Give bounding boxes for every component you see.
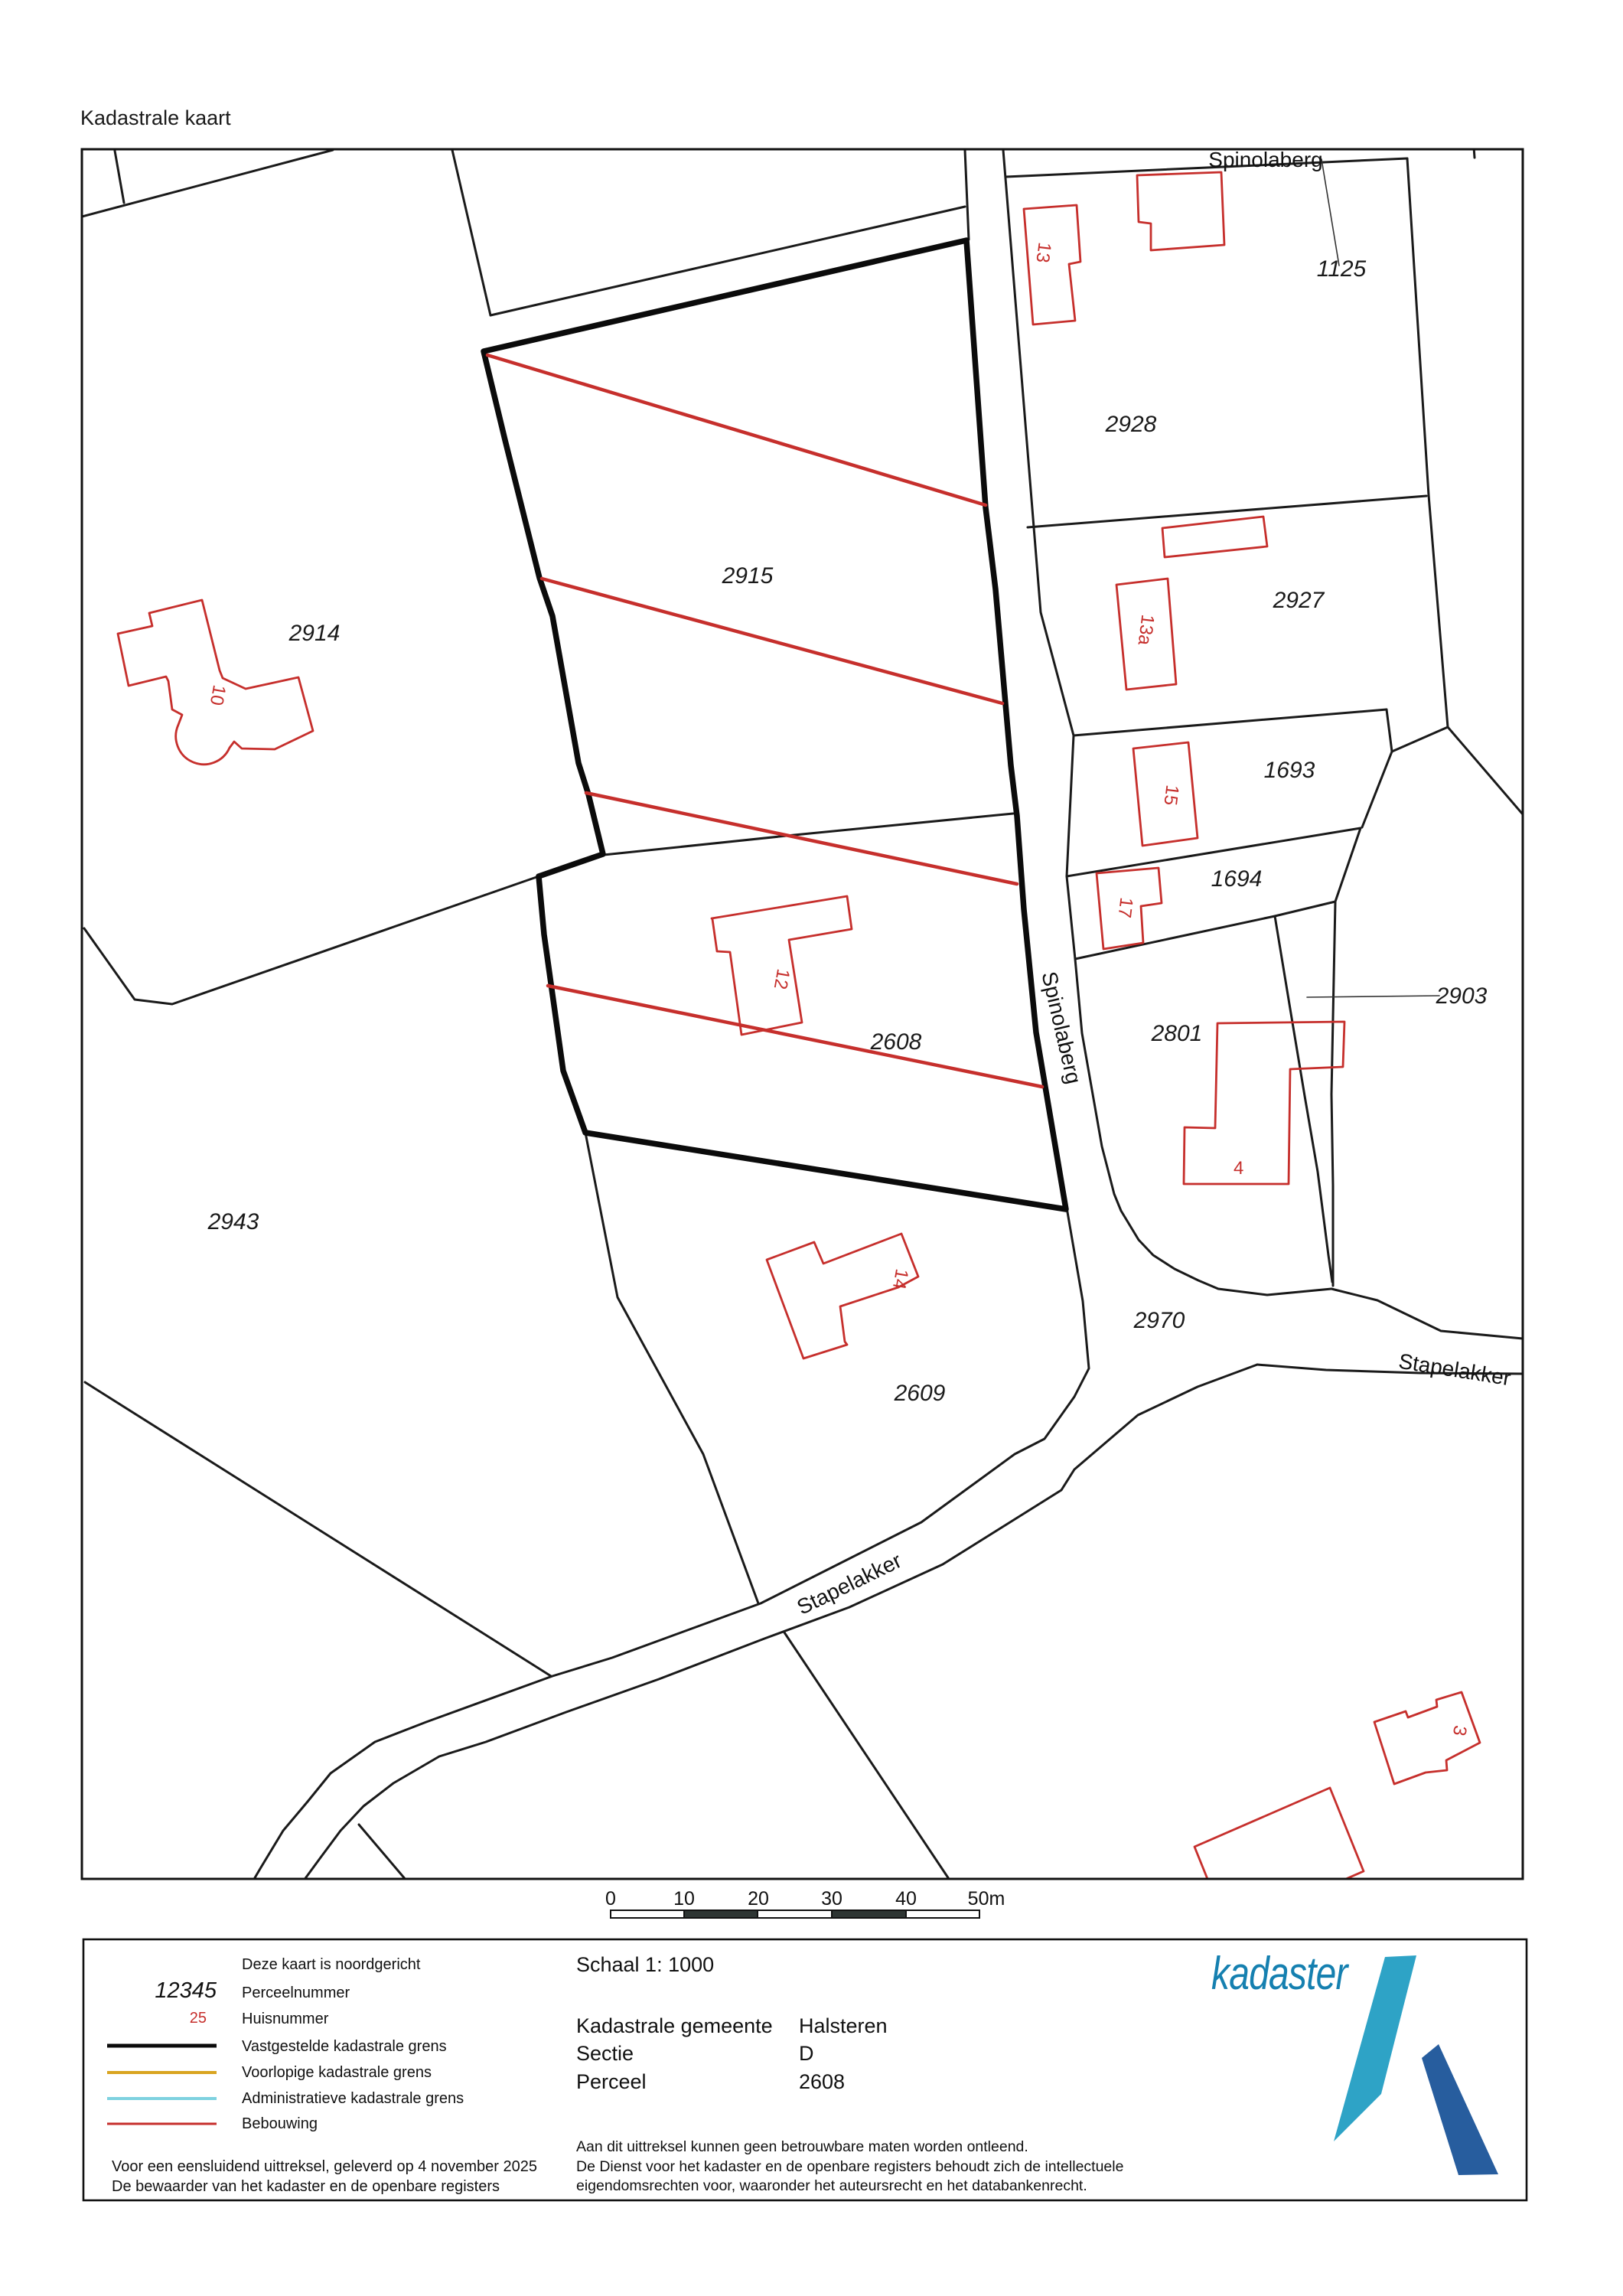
svg-text:2914: 2914	[288, 621, 341, 646]
svg-text:Administratieve kadastrale gre: Administratieve kadastrale grens	[242, 2090, 464, 2107]
svg-text:Schaal 1: 1000: Schaal 1: 1000	[576, 1953, 714, 1976]
svg-text:10: 10	[673, 1888, 695, 1910]
svg-text:1125: 1125	[1317, 256, 1367, 282]
svg-text:25: 25	[190, 2010, 207, 2027]
svg-text:Deze kaart is noordgericht: Deze kaart is noordgericht	[242, 1956, 421, 1973]
svg-text:0: 0	[605, 1888, 616, 1910]
svg-text:Perceelnummer: Perceelnummer	[242, 1985, 350, 2001]
svg-text:14: 14	[888, 1267, 912, 1291]
svg-text:17: 17	[1113, 896, 1136, 919]
svg-text:2608: 2608	[799, 2070, 845, 2093]
svg-text:15: 15	[1159, 784, 1182, 807]
svg-text:Voorlopige kadastrale grens: Voorlopige kadastrale grens	[242, 2064, 432, 2081]
svg-text:2915: 2915	[722, 563, 774, 589]
svg-text:Kadastrale kaart: Kadastrale kaart	[80, 106, 231, 129]
svg-text:Perceel: Perceel	[576, 2070, 647, 2093]
svg-text:2970: 2970	[1133, 1308, 1185, 1333]
svg-text:1693: 1693	[1264, 758, 1315, 783]
svg-text:kadaster: kadaster	[1211, 1948, 1349, 1999]
svg-text:40: 40	[895, 1888, 917, 1910]
svg-text:Aan dit uittreksel kunnen geen: Aan dit uittreksel kunnen geen betrouwba…	[576, 2138, 1028, 2155]
svg-text:Bebouwing: Bebouwing	[242, 2115, 318, 2132]
svg-text:2928: 2928	[1105, 412, 1157, 437]
svg-text:1694: 1694	[1211, 866, 1263, 892]
svg-text:Voor een eensluidend uittrekse: Voor een eensluidend uittreksel, gelever…	[112, 2158, 537, 2175]
svg-text:4: 4	[1234, 1158, 1243, 1179]
svg-text:30: 30	[821, 1888, 842, 1910]
svg-text:12: 12	[770, 967, 794, 991]
svg-text:2801: 2801	[1151, 1021, 1203, 1046]
svg-text:De Dienst voor het kadaster en: De Dienst voor het kadaster en de openba…	[576, 2158, 1123, 2175]
svg-text:2608: 2608	[870, 1029, 922, 1055]
svg-text:13a: 13a	[1134, 613, 1159, 647]
svg-text:Vastgestelde kadastrale grens: Vastgestelde kadastrale grens	[242, 2038, 447, 2055]
svg-text:2609: 2609	[894, 1381, 946, 1406]
svg-text:De bewaarder van het kadaster: De bewaarder van het kadaster en de open…	[112, 2178, 500, 2195]
svg-text:D: D	[799, 2042, 814, 2065]
svg-text:10: 10	[206, 683, 230, 707]
svg-text:20: 20	[748, 1888, 769, 1910]
svg-text:50m: 50m	[968, 1888, 1005, 1910]
svg-text:Halsteren: Halsteren	[799, 2014, 888, 2037]
svg-text:13: 13	[1031, 241, 1054, 264]
svg-text:Huisnummer: Huisnummer	[242, 2011, 329, 2027]
svg-text:2903: 2903	[1436, 983, 1488, 1009]
svg-text:Spinolaberg: Spinolaberg	[1208, 148, 1322, 171]
svg-text:eigendomsrechten voor, waarond: eigendomsrechten voor, waaronder het aut…	[576, 2177, 1087, 2194]
svg-text:2943: 2943	[207, 1209, 259, 1234]
svg-text:12345: 12345	[155, 1978, 217, 2003]
svg-text:Sectie: Sectie	[576, 2042, 634, 2065]
svg-text:2927: 2927	[1273, 588, 1325, 613]
svg-text:Kadastrale gemeente: Kadastrale gemeente	[576, 2014, 773, 2037]
